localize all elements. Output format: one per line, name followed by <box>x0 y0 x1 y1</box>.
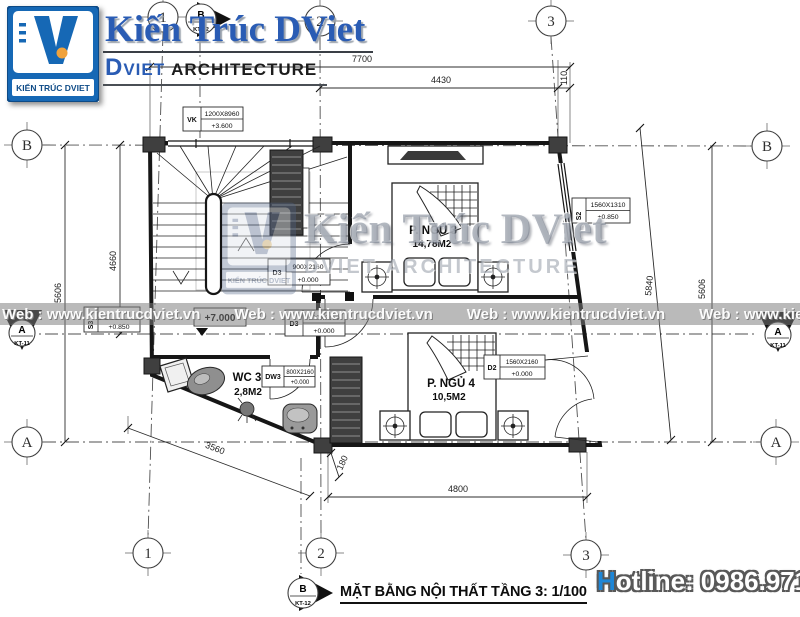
pillow <box>420 412 451 437</box>
section-marker-kt12-bottom: B KT-12 <box>288 575 333 611</box>
room-area-ngu3: 14,78M2 <box>413 239 452 250</box>
room-label-ngu4: P. NGỦ 4 <box>427 377 475 390</box>
section-marker-kt11-right: A KT-11 <box>758 312 798 352</box>
tag-d2: D2 1560X2160 +0.000 <box>484 355 545 379</box>
svg-text:S2: S2 <box>576 212 583 221</box>
stair-arrow-up <box>238 238 254 251</box>
stair-winders <box>157 146 347 200</box>
wardrobe-ngu4 <box>330 357 362 443</box>
svg-text:D3: D3 <box>273 270 282 277</box>
tag-dw3: DW3 800X2160 +0.000 <box>262 366 315 387</box>
dim-top-span: 4430 <box>431 75 451 85</box>
brand-block: Kiến Trúc DViet DVIETARCHITECTURE <box>103 10 373 86</box>
svg-text:+0.000: +0.000 <box>291 380 310 386</box>
room-area-ngu4: 10,5M2 <box>432 392 466 403</box>
walls <box>143 137 603 453</box>
tag-vk: VK 1200X8960 +3.600 <box>183 107 243 131</box>
level-triangle-icon <box>196 328 208 336</box>
company-logo: KIẾN TRÚC DVIET <box>7 6 99 102</box>
room-label-ngu3: P. NGỦ 3 <box>409 224 457 237</box>
room-label-wc3: WC 3 <box>233 372 262 384</box>
grid-bubble-1b: 1 <box>144 546 152 562</box>
dim-bottom-span: 4800 <box>448 484 468 494</box>
room-area-wc3: 2,8M2 <box>234 387 262 398</box>
pillow <box>439 258 470 286</box>
grid-bubble-B-right: B <box>762 139 772 155</box>
svg-text:KT-11: KT-11 <box>770 343 786 349</box>
svg-text:+7.000: +7.000 <box>205 313 236 324</box>
svg-text:B: B <box>299 584 306 595</box>
grid-bubble-A-right: A <box>771 435 782 451</box>
svg-text:+3.600: +3.600 <box>212 123 233 130</box>
hotline: Hotline:0986.971.699 <box>597 566 800 597</box>
svg-text:+0.000: +0.000 <box>298 277 319 284</box>
svg-text:+0.000: +0.000 <box>314 328 335 335</box>
stair-arrow-down <box>173 271 189 284</box>
svg-text:1560X1310: 1560X1310 <box>591 202 626 209</box>
svg-text:S3: S3 <box>88 321 95 330</box>
svg-text:1200X8960: 1200X8960 <box>205 111 240 118</box>
svg-text:DW3: DW3 <box>265 374 281 381</box>
tv-icon <box>400 151 466 160</box>
svg-text:900X2160: 900X2160 <box>293 264 324 271</box>
tag-d3-upper: D3 900X2160 +0.000 <box>268 259 330 285</box>
dim-right-outer: 5606 <box>697 279 707 299</box>
tag-landing-level: +7.000 <box>194 308 246 336</box>
svg-text:D2: D2 <box>488 365 497 372</box>
svg-text:KT-12: KT-12 <box>295 601 311 607</box>
grid-bubble-A-left: A <box>22 435 33 451</box>
svg-text:1560X2160: 1560X2160 <box>506 359 539 366</box>
logo-caption: KIẾN TRÚC DVIET <box>16 82 90 93</box>
svg-text:+0.850: +0.850 <box>598 214 619 221</box>
grid-bubble-3: 3 <box>547 14 555 30</box>
dim-top-offset: 110 <box>559 71 569 85</box>
svg-text:KT-11: KT-11 <box>14 341 30 347</box>
brand-subtitle-d: D <box>105 54 123 81</box>
dim-left-inner: 4660 <box>108 251 118 271</box>
pillow <box>404 258 435 286</box>
svg-text:D3: D3 <box>290 321 299 328</box>
bedroom3-furniture <box>362 146 508 292</box>
tag-s2: S2 1560X1310 +0.850 <box>572 198 630 223</box>
tag-d3-lower: D3 900X2160 +0.000 <box>285 310 345 336</box>
dim-right-slant: 5840 <box>643 275 655 296</box>
grid-bubble-B-left: B <box>22 138 32 154</box>
stair-handrail <box>206 194 221 294</box>
brand-subtitle-viet: VIET <box>123 60 165 79</box>
wardrobe-ngu3 <box>270 150 309 235</box>
hotline-number: 0986.971.699 <box>701 566 800 596</box>
svg-text:A: A <box>774 327 781 338</box>
brand-subtitle: DVIETARCHITECTURE <box>103 54 327 86</box>
svg-text:+0.850: +0.850 <box>109 324 130 331</box>
dim-left-outer: 5606 <box>53 283 63 303</box>
svg-text:VK: VK <box>187 117 197 124</box>
shower-head-icon <box>238 398 256 423</box>
hotline-label: otline: <box>616 566 694 596</box>
grid-bubble-2b: 2 <box>317 546 325 562</box>
pillow <box>456 412 487 437</box>
logo-orange-dot <box>57 48 68 59</box>
brand-subtitle-architecture: ARCHITECTURE <box>171 60 317 79</box>
svg-text:A: A <box>18 325 25 336</box>
hotline-h: H <box>597 566 616 596</box>
grid-bubble-3b: 3 <box>582 548 590 564</box>
tag-s3: S3 +0.850 <box>84 307 140 332</box>
svg-text:800X2160: 800X2160 <box>286 370 314 376</box>
brand-title: Kiến Trúc DViet <box>103 10 373 53</box>
drawing-title: MẶT BẰNG NỘI THẤT TẦNG 3: 1/100 <box>340 584 587 604</box>
grid-lines <box>22 33 760 574</box>
dim-bottom-small: 180 <box>335 454 350 472</box>
svg-text:+0.000: +0.000 <box>512 371 533 378</box>
svg-text:900X2160: 900X2160 <box>309 315 340 322</box>
floor-plan-drawing: 7700 4430 110 5606 4660 5606 5840 4800 1… <box>0 0 800 617</box>
floor-plan-sheet: 7700 4430 110 5606 4660 5606 5840 4800 1… <box>0 0 800 617</box>
section-marker-kt11-left: A KT-11 <box>2 310 42 350</box>
